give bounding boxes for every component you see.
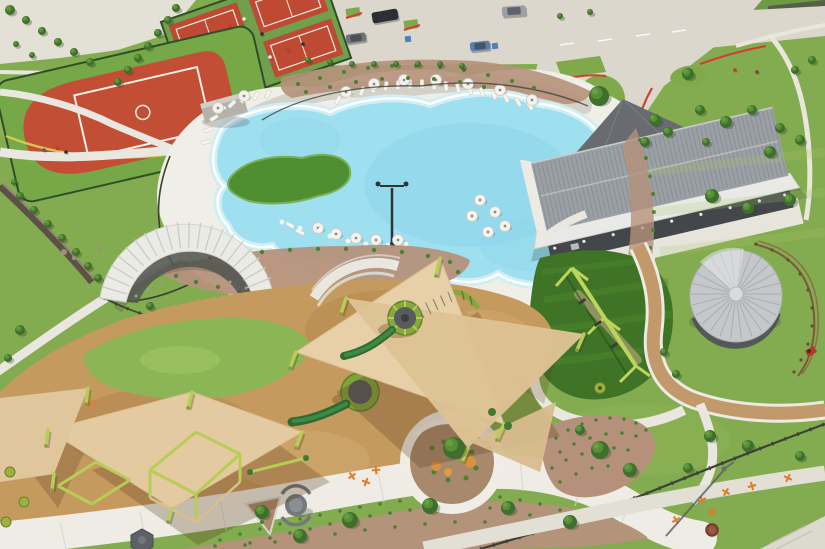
fence-post bbox=[798, 272, 801, 275]
tree bbox=[115, 79, 117, 81]
sail-post bbox=[50, 488, 54, 492]
tree bbox=[460, 64, 462, 66]
tree bbox=[7, 6, 10, 9]
tree bbox=[173, 5, 175, 7]
tree bbox=[577, 426, 580, 429]
silo-roof-cap bbox=[729, 287, 743, 301]
shrub bbox=[456, 270, 460, 274]
person bbox=[268, 55, 272, 59]
umbrella bbox=[373, 83, 376, 86]
tree bbox=[14, 42, 16, 44]
adirondack-chair bbox=[318, 228, 323, 233]
car-glass bbox=[507, 7, 521, 16]
shrub bbox=[260, 250, 264, 254]
shrub bbox=[194, 280, 198, 284]
pergola-bench bbox=[229, 281, 232, 284]
fence-post bbox=[806, 342, 809, 345]
shrub bbox=[532, 86, 536, 90]
sail-post bbox=[186, 406, 190, 410]
tree bbox=[503, 503, 507, 507]
shrub bbox=[260, 520, 264, 524]
tree bbox=[344, 514, 349, 519]
umbrella bbox=[471, 215, 474, 218]
tree bbox=[30, 53, 32, 55]
tree bbox=[12, 180, 14, 182]
shrub bbox=[398, 499, 402, 503]
shrub bbox=[558, 450, 562, 454]
shrub bbox=[644, 428, 648, 432]
shrub bbox=[238, 532, 242, 536]
shrub bbox=[354, 80, 358, 84]
tree bbox=[85, 263, 87, 265]
suv bbox=[502, 5, 528, 19]
shrub bbox=[388, 511, 392, 515]
adirondack-chair bbox=[280, 220, 285, 225]
tree bbox=[684, 70, 688, 74]
shrub bbox=[372, 248, 376, 252]
shrub bbox=[620, 431, 624, 435]
umbrella bbox=[531, 99, 534, 102]
tree bbox=[651, 116, 655, 120]
shrub bbox=[400, 250, 404, 254]
tree bbox=[592, 89, 598, 95]
shrub bbox=[622, 417, 626, 421]
shrub bbox=[572, 442, 576, 446]
car-glass bbox=[474, 42, 486, 50]
tree bbox=[707, 191, 711, 195]
fence-post bbox=[799, 358, 802, 361]
tree bbox=[446, 440, 453, 447]
shrub bbox=[296, 82, 300, 86]
sail-post bbox=[575, 348, 579, 352]
sail-post bbox=[86, 388, 88, 404]
sail-post bbox=[46, 430, 48, 446]
shrub bbox=[464, 476, 469, 481]
shrub bbox=[482, 85, 486, 89]
lounge-chair bbox=[420, 79, 424, 88]
tree bbox=[697, 106, 700, 109]
tree bbox=[673, 371, 675, 373]
shrub bbox=[423, 522, 427, 526]
accessible-parking-marking bbox=[405, 36, 412, 43]
shrub bbox=[651, 228, 655, 232]
shrub bbox=[278, 522, 282, 526]
umbrella bbox=[397, 239, 400, 242]
fence-post bbox=[792, 370, 795, 373]
pergola-bench bbox=[245, 287, 248, 290]
tree bbox=[722, 118, 726, 122]
sail-post bbox=[166, 520, 170, 524]
accessible-parking-marking bbox=[492, 43, 499, 50]
shrub bbox=[342, 70, 346, 74]
shrub bbox=[243, 543, 247, 547]
shrub bbox=[446, 478, 451, 483]
umbrella bbox=[494, 211, 497, 214]
spring-rider bbox=[504, 422, 512, 430]
umbrella bbox=[504, 225, 507, 228]
tree bbox=[749, 106, 752, 109]
tree bbox=[147, 303, 149, 305]
shrub bbox=[174, 274, 178, 278]
shrub bbox=[458, 80, 462, 84]
shrub bbox=[574, 472, 578, 476]
sail-post bbox=[495, 438, 499, 442]
shrub bbox=[453, 520, 457, 524]
shrub bbox=[328, 522, 332, 526]
tree bbox=[588, 10, 590, 12]
shrub bbox=[558, 508, 562, 512]
boulder bbox=[98, 248, 102, 252]
aerial-photo-community-amenity-center bbox=[0, 0, 825, 549]
shrub bbox=[626, 448, 630, 452]
shrub bbox=[380, 77, 384, 81]
tree bbox=[703, 139, 705, 141]
shrub bbox=[426, 254, 430, 258]
shrub bbox=[474, 466, 479, 471]
shrub bbox=[268, 536, 272, 540]
shrub bbox=[612, 446, 616, 450]
shrub bbox=[318, 76, 322, 80]
fence-post bbox=[754, 242, 757, 245]
shrub bbox=[588, 436, 592, 440]
tree bbox=[45, 221, 47, 223]
tree bbox=[17, 326, 20, 329]
fence-post bbox=[770, 248, 773, 251]
shrub bbox=[432, 77, 436, 81]
tree bbox=[438, 62, 440, 64]
shrub bbox=[528, 513, 532, 517]
person bbox=[301, 42, 305, 46]
fence-post bbox=[786, 258, 789, 261]
tree bbox=[39, 28, 41, 30]
shrub bbox=[580, 452, 584, 456]
tree bbox=[328, 60, 330, 62]
shrub bbox=[538, 502, 542, 506]
tree bbox=[625, 465, 629, 469]
person bbox=[755, 70, 759, 74]
shrub bbox=[368, 514, 372, 518]
pool-light-lamp bbox=[376, 182, 381, 187]
fence-post bbox=[810, 324, 813, 327]
tree bbox=[155, 30, 157, 32]
tree bbox=[797, 136, 800, 139]
shrub bbox=[408, 508, 412, 512]
shrub bbox=[213, 544, 217, 548]
umbrella bbox=[487, 231, 490, 234]
tree bbox=[17, 193, 19, 195]
manhole bbox=[709, 527, 716, 534]
grass-highlight bbox=[140, 346, 220, 374]
tree bbox=[424, 500, 429, 505]
tree bbox=[394, 62, 396, 64]
orange-boulder bbox=[444, 468, 452, 476]
shrub bbox=[486, 73, 490, 77]
shrub bbox=[273, 540, 277, 544]
umbrella bbox=[217, 107, 220, 110]
car bbox=[470, 40, 492, 53]
shrub bbox=[298, 517, 302, 521]
shrub bbox=[363, 528, 367, 532]
umbrella bbox=[403, 79, 406, 82]
person bbox=[733, 68, 737, 72]
spring-rider bbox=[5, 467, 15, 477]
tree bbox=[744, 442, 748, 446]
person bbox=[64, 150, 68, 154]
person bbox=[42, 148, 46, 152]
tree bbox=[416, 62, 418, 64]
sail-post bbox=[84, 402, 88, 406]
shrub bbox=[406, 76, 410, 80]
pergola-bench bbox=[177, 278, 180, 281]
tree bbox=[145, 43, 147, 45]
spring-rider bbox=[1, 517, 11, 527]
sail-post bbox=[460, 460, 464, 464]
sail-post bbox=[339, 312, 343, 316]
shrub bbox=[651, 192, 655, 196]
shrub bbox=[304, 90, 308, 94]
shrub bbox=[316, 247, 320, 251]
shrub bbox=[558, 480, 562, 484]
tree bbox=[766, 148, 770, 152]
tree bbox=[95, 275, 97, 277]
tree bbox=[665, 128, 668, 131]
tree bbox=[71, 49, 73, 51]
umbrella bbox=[355, 237, 358, 240]
umbrella bbox=[479, 199, 482, 202]
tree bbox=[55, 39, 57, 41]
fence-post bbox=[806, 288, 809, 291]
tree bbox=[5, 355, 7, 357]
sail-post bbox=[288, 366, 292, 370]
shrub bbox=[308, 527, 312, 531]
tree bbox=[23, 17, 25, 19]
shrub bbox=[510, 79, 514, 83]
shrub bbox=[358, 505, 362, 509]
pool-light-lamp bbox=[404, 182, 409, 187]
shrub bbox=[448, 260, 452, 264]
shrub bbox=[483, 520, 487, 524]
tree bbox=[786, 196, 790, 200]
shrub bbox=[216, 285, 220, 289]
shrub bbox=[288, 531, 292, 535]
spring-rider bbox=[488, 408, 496, 416]
person bbox=[228, 24, 232, 28]
tree bbox=[777, 124, 780, 127]
tree bbox=[125, 67, 127, 69]
shrub bbox=[248, 541, 252, 545]
pergola-bench bbox=[213, 277, 216, 280]
adirondack-chair bbox=[298, 226, 303, 231]
tree bbox=[594, 443, 599, 448]
pergola-bench bbox=[147, 288, 150, 291]
spring-rider bbox=[19, 497, 29, 507]
person bbox=[260, 32, 264, 36]
shrub bbox=[634, 434, 638, 438]
tree bbox=[642, 138, 645, 141]
shrub bbox=[566, 428, 570, 432]
shrub bbox=[564, 458, 568, 462]
tree bbox=[797, 452, 800, 455]
umbrella bbox=[499, 89, 502, 92]
adirondack-chair bbox=[328, 234, 333, 239]
sail-post bbox=[294, 446, 298, 450]
tree bbox=[744, 204, 748, 208]
shrub bbox=[644, 156, 648, 160]
umbrella bbox=[335, 233, 338, 236]
shrub bbox=[318, 513, 322, 517]
shrub bbox=[338, 509, 342, 513]
sail-post bbox=[52, 474, 54, 490]
shrub bbox=[393, 525, 397, 529]
hex-shade-table bbox=[138, 536, 146, 544]
tree bbox=[558, 14, 560, 16]
shrub bbox=[594, 418, 598, 422]
person bbox=[55, 146, 59, 150]
balance-beam-end bbox=[303, 455, 309, 461]
shrub bbox=[258, 527, 262, 531]
scene-svg bbox=[0, 0, 825, 549]
tree bbox=[809, 57, 811, 59]
shrub bbox=[488, 506, 492, 510]
tree bbox=[165, 17, 167, 19]
tree bbox=[372, 62, 374, 64]
boulder bbox=[61, 249, 67, 255]
pergola-bench bbox=[195, 276, 198, 279]
tree bbox=[135, 55, 137, 57]
pergola-bench bbox=[161, 282, 164, 285]
tree bbox=[661, 349, 663, 351]
tree bbox=[31, 207, 33, 209]
shrub bbox=[634, 421, 638, 425]
shrub bbox=[378, 502, 382, 506]
play-tower-hub bbox=[401, 314, 409, 322]
shrub bbox=[344, 247, 348, 251]
tree bbox=[87, 59, 89, 61]
shrub bbox=[288, 248, 292, 252]
shrub bbox=[604, 432, 608, 436]
tree bbox=[792, 67, 794, 69]
shrub bbox=[333, 532, 337, 536]
tree bbox=[306, 58, 308, 60]
tree bbox=[59, 235, 61, 237]
tree bbox=[706, 432, 710, 436]
mower bbox=[807, 349, 811, 353]
balance-beam-end bbox=[247, 469, 253, 475]
sail-post bbox=[434, 274, 438, 278]
adirondack-chair bbox=[346, 239, 351, 244]
pergola-bench bbox=[135, 295, 138, 298]
tree bbox=[565, 517, 569, 521]
umbrella bbox=[243, 95, 246, 98]
tree bbox=[257, 507, 261, 511]
sail-post bbox=[44, 444, 48, 448]
shrub bbox=[498, 495, 502, 499]
person bbox=[242, 17, 246, 21]
shrub bbox=[328, 85, 332, 89]
tree bbox=[350, 62, 352, 64]
shrub bbox=[606, 464, 610, 468]
spinner-toy bbox=[598, 386, 602, 390]
tree bbox=[295, 531, 299, 535]
shrub bbox=[518, 498, 522, 502]
shrub bbox=[218, 538, 222, 542]
person bbox=[286, 48, 290, 52]
shrub bbox=[608, 416, 612, 420]
tree bbox=[73, 249, 75, 251]
fence-post bbox=[810, 306, 813, 309]
umbrella bbox=[375, 239, 378, 242]
shrub bbox=[590, 466, 594, 470]
shrub bbox=[366, 66, 370, 70]
shrub bbox=[550, 466, 554, 470]
tree bbox=[685, 464, 688, 467]
